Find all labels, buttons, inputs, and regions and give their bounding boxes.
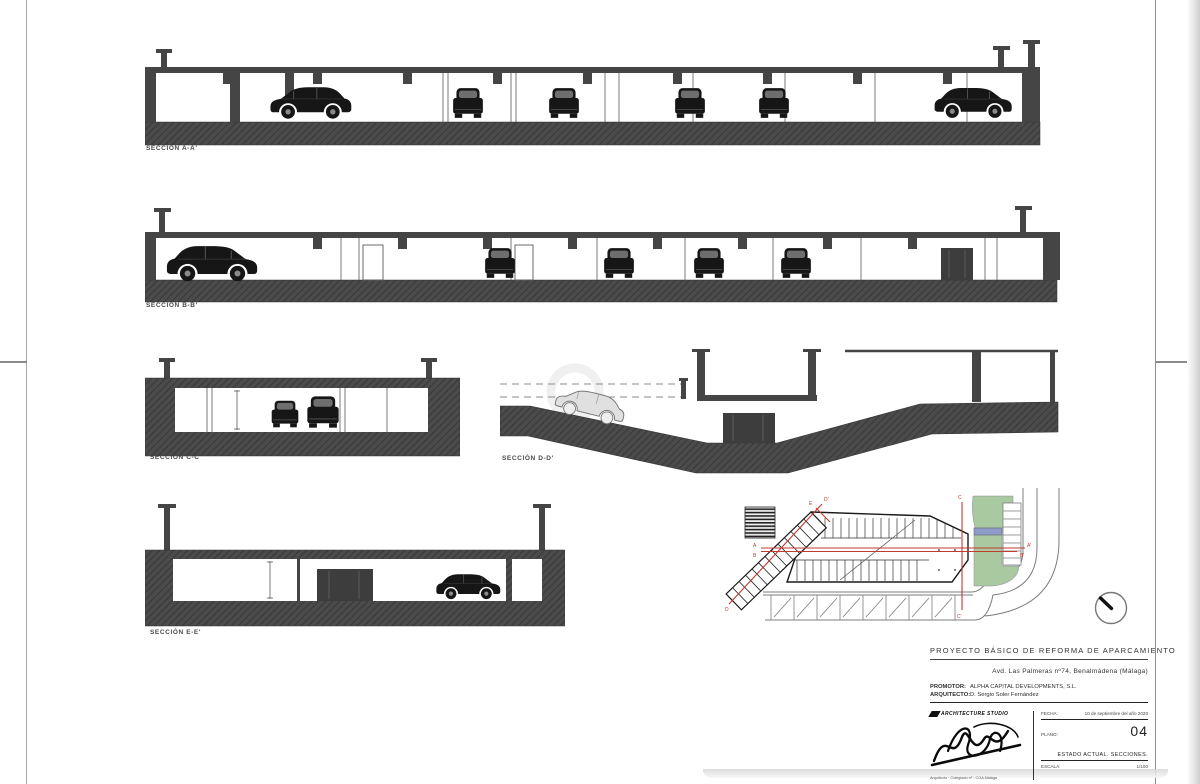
- arquitecto-label: ARQUITECTO:: [930, 692, 970, 698]
- title-block: PROYECTO BÁSICO DE REFORMA DE APARCAMIEN…: [930, 646, 1148, 780]
- promotor-label: PROMOTOR:: [930, 684, 970, 690]
- sheet-info: FECHA: 10 de septiembre del año 2020 PLA…: [1033, 711, 1148, 780]
- scan-edge-shadow: [1187, 0, 1200, 784]
- project-title: PROYECTO BÁSICO DE REFORMA DE APARCAMIEN…: [930, 646, 1148, 660]
- firm-note: Arquitecto · Colegiado nº · COA Málaga: [930, 776, 1026, 780]
- project-parties: PROMOTOR: ALPHA CAPITAL DEVELOPMENTS, S.…: [930, 684, 1148, 703]
- plan-cut-label-d2: D': [824, 497, 829, 503]
- seccion-e-drawing: [145, 495, 565, 640]
- seccion-a-drawing: [145, 25, 1045, 150]
- plan-cut-label-c2: C': [957, 614, 962, 620]
- architect-signature: [930, 717, 1024, 769]
- seccion-c-drawing: [145, 350, 460, 465]
- plano-number: 04: [1130, 723, 1148, 739]
- plano-label: PLANO:: [1041, 732, 1058, 737]
- fecha-label: FECHA:: [1041, 711, 1058, 716]
- seccion-d-drawing: [500, 340, 1060, 480]
- fecha-value: 10 de septiembre del año 2020: [1085, 711, 1148, 716]
- plan-cut-label-a: A: [753, 543, 757, 549]
- fold-tick-left: [0, 361, 27, 363]
- escala-label: ESCALA:: [1041, 764, 1060, 769]
- plan-cut-label-e: E: [809, 501, 813, 507]
- project-address: Avd. Las Palmeras nº74, Benalmádena (Mál…: [930, 668, 1148, 675]
- promotor-value: ALPHA CAPITAL DEVELOPMENTS, S.L.: [970, 684, 1077, 690]
- seccion-c-label: SECCIÓN C-C': [150, 454, 202, 461]
- arquitecto-value: D. Sergio Soler Fernández: [970, 692, 1039, 698]
- sheet-subject: ESTADO ACTUAL. SECCIONES.: [1041, 752, 1148, 761]
- plan-cut-label-c: C: [958, 495, 962, 501]
- seccion-b-label: SECCIÓN B-B': [146, 302, 198, 309]
- escala-value: 1/100: [1137, 764, 1149, 769]
- seccion-b-drawing: [145, 195, 1060, 320]
- scan-fold-line-left: [26, 0, 27, 784]
- plan-cut-label-d: D: [725, 607, 729, 613]
- key-plan-drawing: A A' B B' C C' D' D E: [725, 488, 1070, 643]
- plan-cut-label-b2: B': [1020, 553, 1024, 559]
- north-arrow-icon: [1094, 591, 1128, 625]
- plan-cut-label-a2: A': [1027, 543, 1031, 549]
- blueprint-sheet: SECCIÓN A-A': [0, 0, 1200, 784]
- firm-stamp-area: ARCHITECTURE STUDIO Arquitecto · Colegia…: [930, 711, 1026, 780]
- seccion-d-label: SECCIÓN D-D': [502, 455, 554, 462]
- scan-fold-line-right: [1155, 0, 1156, 784]
- seccion-a-label: SECCIÓN A-A': [146, 145, 197, 152]
- plan-cut-label-b: B: [753, 553, 757, 559]
- seccion-e-label: SECCIÓN E-E': [150, 629, 201, 636]
